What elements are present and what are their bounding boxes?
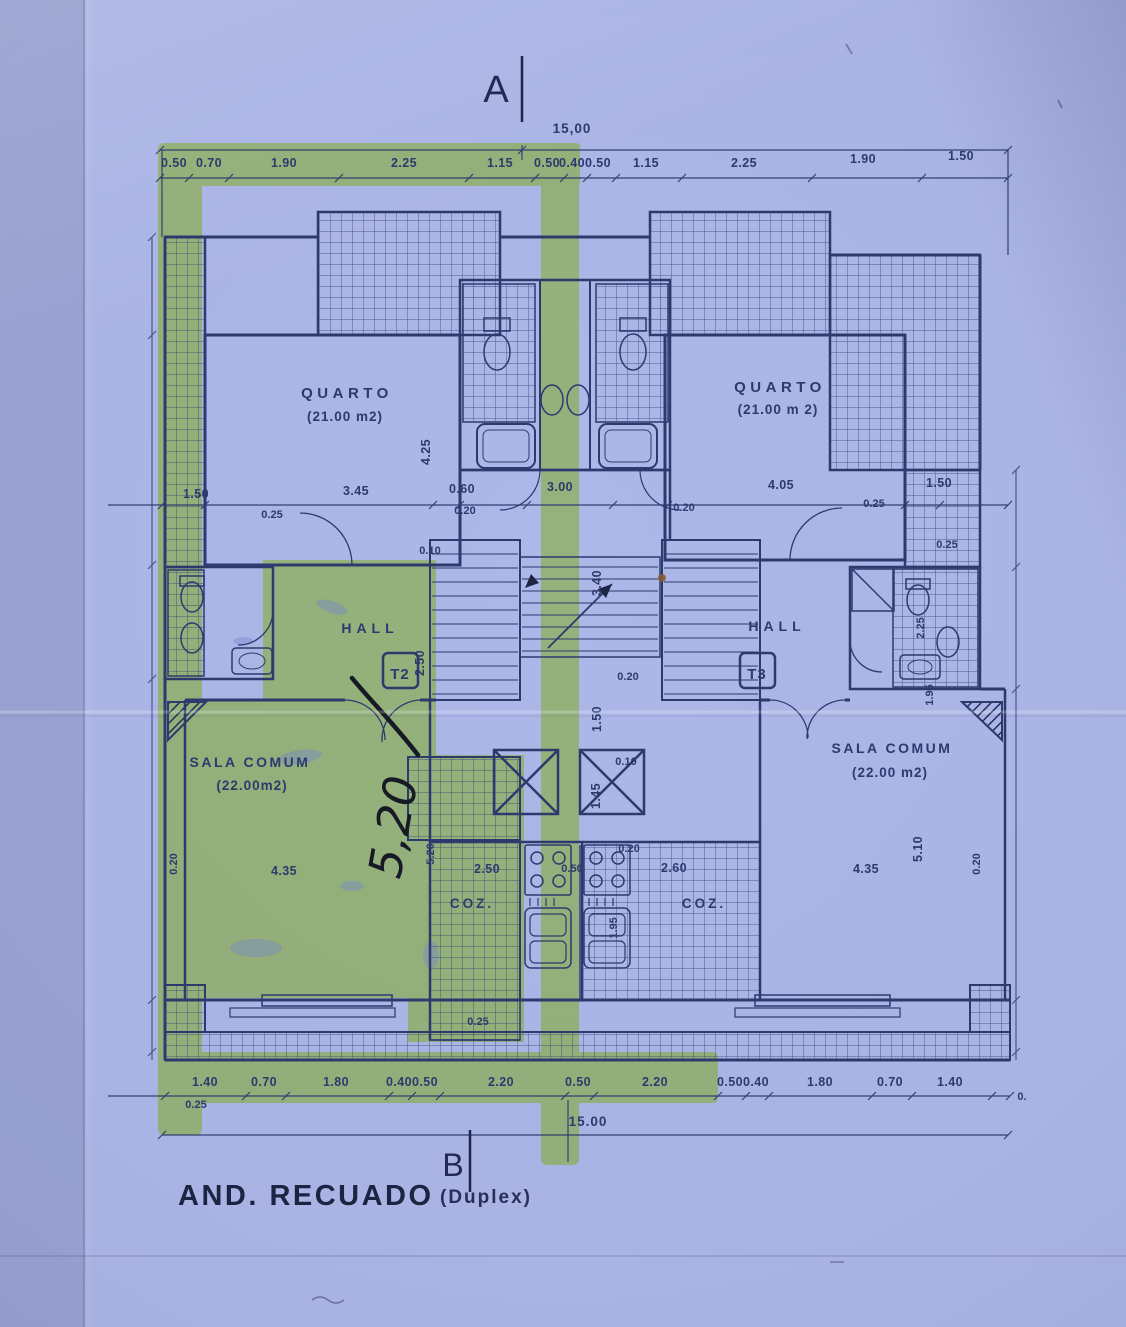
dim-label: 1.15 — [487, 156, 513, 170]
dim-label: 0.25 — [261, 509, 282, 521]
dim-label: 1.50 — [590, 706, 604, 732]
dim-label: 5.20 — [425, 843, 437, 864]
dim-label: 0.50 — [534, 156, 560, 170]
dim-label: 1.95 — [924, 684, 936, 705]
dim-label: 0.25 — [467, 1016, 488, 1028]
drawing-title: AND. RECUADO — [178, 1180, 434, 1212]
dim-label: 0.40 — [743, 1075, 769, 1089]
dim-label: 0.40 — [386, 1075, 412, 1089]
room-coz-left: COZ. — [450, 896, 494, 911]
dim-label: 0.70 — [877, 1075, 903, 1089]
room-quarto-right: QUARTO — [734, 379, 826, 396]
dim-label: 0.20 — [617, 671, 638, 683]
unit-type-t3: T3 — [747, 666, 767, 683]
dim-label: 1.90 — [850, 152, 876, 166]
dim-label: 1.45 — [589, 783, 603, 809]
section-marker-b: B — [442, 1147, 463, 1183]
dim-label: 2.20 — [642, 1075, 668, 1089]
dim-label: 0.20 — [168, 853, 180, 874]
dim-label: 0.50 — [561, 863, 582, 875]
dim-label: 0.60 — [449, 482, 475, 496]
dim-label: 2.25 — [915, 617, 927, 638]
dim-label: 0.20 — [454, 505, 475, 517]
dim-label: 3.40 — [590, 570, 604, 596]
dim-label: 4.35 — [853, 862, 879, 876]
dim-label: 0. — [1017, 1091, 1026, 1103]
dim-label: 1.90 — [271, 156, 297, 170]
dim-label: 0.50 — [565, 1075, 591, 1089]
dim-label: 1.80 — [807, 1075, 833, 1089]
dim-label: 0.40 — [559, 156, 585, 170]
room-sala-right: SALA COMUM — [832, 740, 953, 756]
unit-type-t2: T2 — [390, 666, 410, 683]
room-quarto-left: QUARTO — [301, 385, 393, 402]
dim-label: 1.50 — [948, 149, 974, 163]
dim-label: 0.50 — [161, 156, 187, 170]
dim-label: 1.40 — [192, 1075, 218, 1089]
room-quarto-right-area: (21.00 m 2) — [738, 402, 819, 417]
dim-label: 0.10 — [615, 756, 636, 768]
dim-label: 3.45 — [343, 484, 369, 498]
room-coz-right: COZ. — [682, 896, 726, 911]
dim-label: 5.10 — [911, 836, 925, 862]
dim-label: 0.50 — [717, 1075, 743, 1089]
dim-label: 2.20 — [488, 1075, 514, 1089]
dim-label: 0.70 — [251, 1075, 277, 1089]
dim-label: 4.25 — [419, 439, 433, 465]
dim-label: 2.60 — [661, 861, 687, 875]
drawing-subtitle: (Duplex) — [440, 1187, 532, 1208]
dim-label: 0.20 — [618, 843, 639, 855]
dim-label: 1.40 — [937, 1075, 963, 1089]
dim-label: 1.15 — [633, 156, 659, 170]
dim-label: 0.25 — [863, 498, 884, 510]
dim-label: 4.35 — [271, 864, 297, 878]
room-quarto-left-area: (21.00 m2) — [307, 409, 383, 424]
room-sala-left: SALA COMUM — [190, 754, 311, 770]
dim-label: 3.00 — [547, 480, 573, 494]
dim-label: 1.50 — [183, 487, 209, 501]
dim-label: 0.50 — [585, 156, 611, 170]
room-hall-left: HALL — [341, 620, 398, 636]
dim-label: 0.25 — [185, 1099, 206, 1111]
room-sala-left-area: (22.00m2) — [216, 778, 287, 793]
dim-label: 1.95 — [608, 917, 620, 938]
dim-overall-bottom: 15.00 — [569, 1114, 608, 1129]
dim-label: 0.20 — [673, 502, 694, 514]
room-hall-right: HALL — [748, 618, 805, 634]
dim-label: 0.70 — [196, 156, 222, 170]
dim-label: 0.50 — [412, 1075, 438, 1089]
dim-label: 1.80 — [323, 1075, 349, 1089]
dim-label: 4.05 — [768, 478, 794, 492]
dim-label: 0.20 — [971, 853, 983, 874]
dim-overall-top: 15,00 — [553, 121, 592, 136]
blueprint-photo: A B 15,00 15.00 0.50 0.70 1.90 2.25 1.15… — [0, 0, 1126, 1327]
dim-label: 2.50 — [474, 862, 500, 876]
dim-label: 2.25 — [731, 156, 757, 170]
dim-label: 0.10 — [419, 545, 440, 557]
dim-label: 2.25 — [391, 156, 417, 170]
dim-label: 0.25 — [936, 539, 957, 551]
room-sala-right-area: (22.00 m2) — [852, 765, 928, 780]
dim-label: 1.50 — [926, 476, 952, 490]
section-marker-a: A — [483, 69, 509, 111]
